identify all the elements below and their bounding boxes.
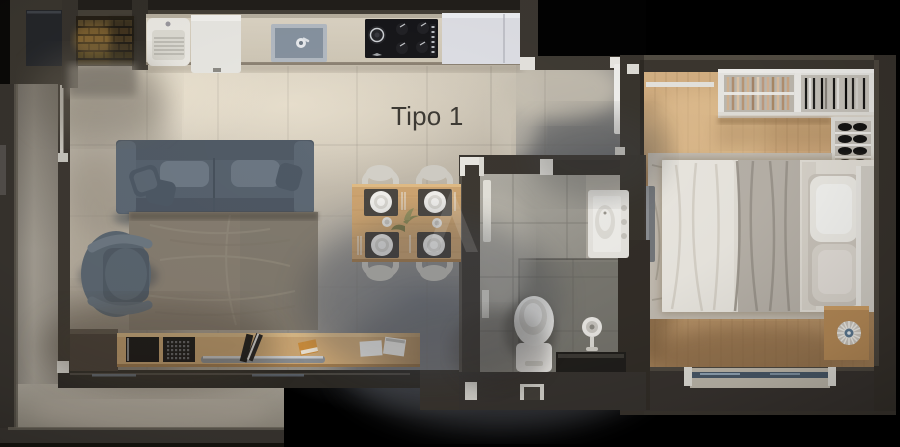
svg-text:Tipo 1: Tipo 1 <box>391 101 464 131</box>
